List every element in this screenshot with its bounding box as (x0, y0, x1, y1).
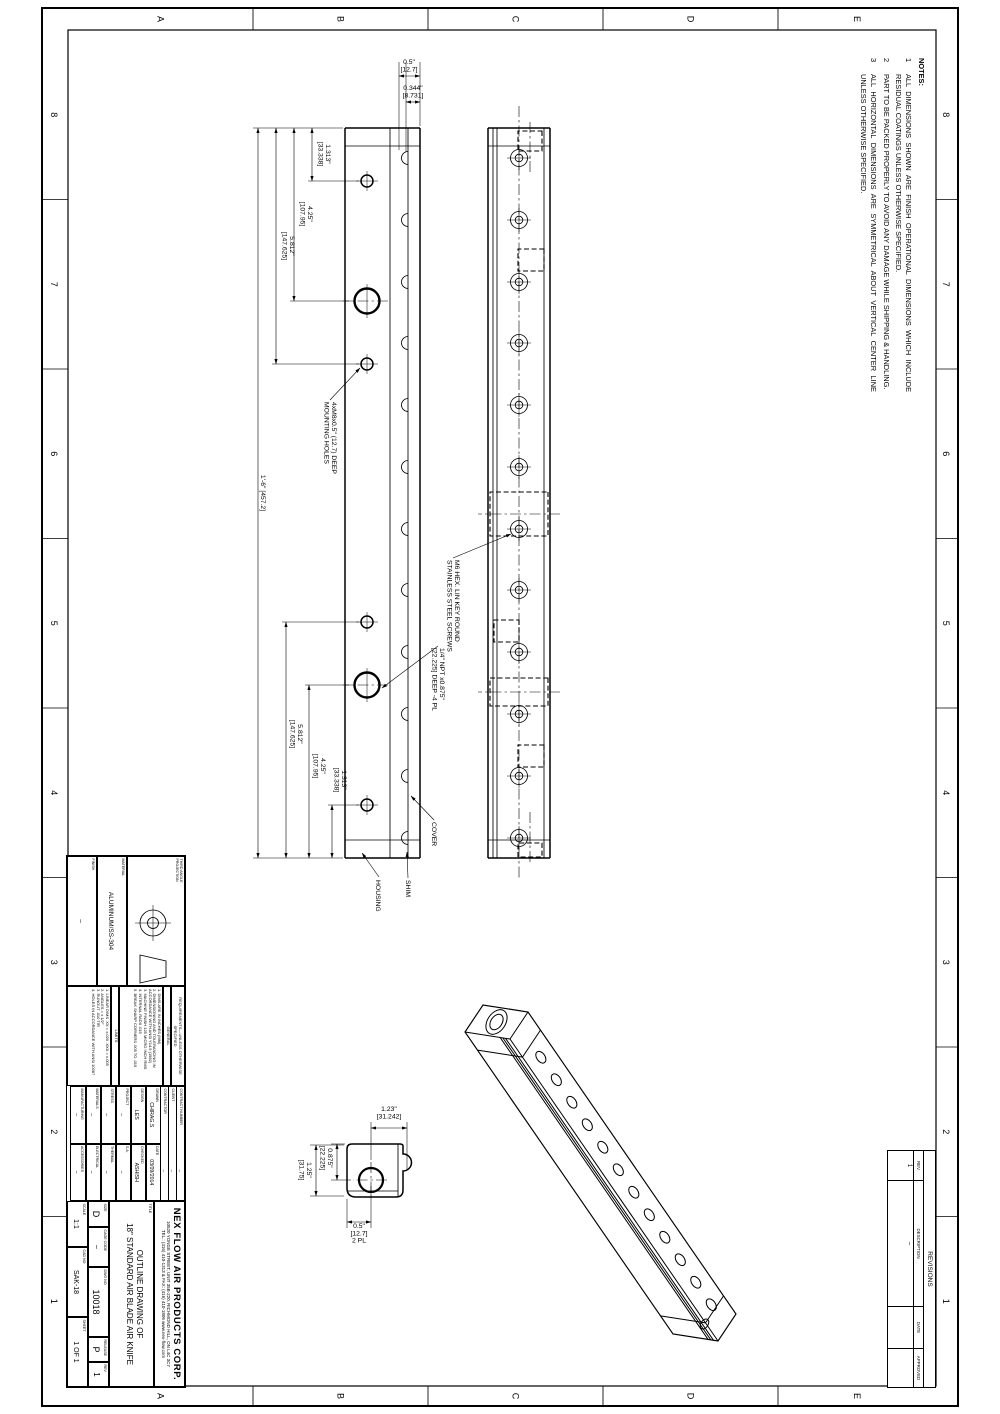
signoff-value: – (73, 1087, 79, 1143)
release-value: P (91, 1338, 101, 1361)
rev-cell: REV 1 (88, 1362, 109, 1387)
signoff-value: – (118, 1087, 124, 1143)
leader-text: HOUSING (374, 880, 381, 912)
zone-column-label: 2 (49, 1129, 59, 1134)
projection-cell: THIRD ANGLE PROJECTION (127, 856, 185, 986)
hidden-feature (518, 745, 544, 767)
dimension-text: [33.338] (333, 768, 340, 793)
signoff-label: CHECKED (140, 1146, 144, 1164)
scale-label: SCALE (82, 1204, 86, 1216)
drawing-title-line1: OUTLINE DRAWING OF (134, 1202, 144, 1386)
zone-column-label: 8 (941, 112, 951, 117)
requirements-header-cell: REQUIREMENTS—UNLESS OTHERWISE SPECIFIED (171, 986, 185, 1086)
dimension-text: 0.5" (353, 1223, 365, 1230)
spec-item: 2. DIMENSIONING AND TOLERANCING IN ACCOR… (147, 989, 156, 1083)
dimension-text: 1'-6" [457.2] (259, 475, 266, 511)
isometric-view (465, 1005, 736, 1341)
leader-text: 4xM8x0.5" (12.7) DEEP (330, 402, 337, 474)
zone-column-label: 3 (49, 960, 59, 965)
signoff-label: MANUFACTURING (80, 1089, 84, 1120)
cage-code-label: CAGE CODE (103, 1230, 107, 1252)
contractor-label: CONTRACTOR (163, 1089, 167, 1114)
client-value: – (169, 1169, 174, 1172)
inner-border (68, 30, 936, 1386)
signoff-row: MANUFACTURING–ACCESSORIES– (70, 1086, 85, 1201)
limits-title-cell: LIMITS (111, 986, 119, 1086)
signoff-cell: THERMAL– (101, 1144, 116, 1202)
cage-code-value: – (93, 1228, 100, 1266)
leader-text: M6 HEX. LIN KEY ROUND (453, 560, 460, 642)
revisions-header: REV (913, 1151, 923, 1181)
signoff-cell: DESIGNLES (131, 1086, 146, 1144)
revisions-table: REVISIONS REVDESCRIPTIONDATEAPPROVED 1– (887, 1150, 936, 1388)
signoff-row: PROJECT–S.A.– (116, 1086, 131, 1201)
company-cell: NEX FLOW AIR PRODUCTS CORP. 10520 YONGE … (154, 1201, 185, 1387)
note-number: 3 (858, 58, 878, 74)
screw-profile-bump (402, 646, 409, 659)
iso-slot-line (506, 1038, 714, 1340)
zone-row-label: C (511, 1393, 521, 1400)
signoff-cell: DATE03/09/2014 (146, 1144, 161, 1202)
dimension-text: 1.313" (324, 144, 331, 164)
iso-slot-line (500, 1037, 708, 1339)
signoff-cell: MANUFACTURING– (70, 1086, 85, 1144)
leader-text: MOUNTING HOLES (323, 402, 330, 464)
release-label: RELEASE (103, 1340, 107, 1357)
general-items-cell: 1. DIMS ARE IN INCHES (MM)2. DIMENSIONIN… (119, 986, 163, 1086)
zone-row-label: A (156, 16, 166, 22)
rev-label: REV (103, 1365, 107, 1372)
contractor-value: – (161, 1169, 166, 1172)
screw-profile-bump (402, 461, 409, 474)
zone-column-label: 2 (941, 1129, 951, 1134)
signoff-row: MATERIALS–ELECTRICAL– (86, 1086, 101, 1201)
size-cell: SIZE D (88, 1201, 109, 1227)
contract-row: CONTRACT NUMBER – (176, 1087, 184, 1200)
company-name: NEX FLOW AIR PRODUCTS CORP. (171, 1202, 182, 1386)
title-cell: TITLE OUTLINE DRAWING OF 18" STANDARD AI… (109, 1201, 154, 1387)
dimension-text: 0.5" (403, 59, 415, 66)
drawing-title-line2: 18" STANDARD AIR BLADE AIR KNIFE (124, 1202, 134, 1386)
client-row: CLIENT – (168, 1087, 176, 1200)
signoff-row: DRAWNCHIRAG.SDATE03/09/2014 (146, 1086, 161, 1201)
signoff-cell: S.A.– (116, 1144, 131, 1202)
signoff-cell: DRAWNCHIRAG.S (146, 1086, 161, 1144)
client-label: CLIENT (171, 1089, 175, 1102)
zone-row-label: B (336, 16, 346, 22)
zone-row-label: D (686, 1393, 696, 1400)
signoff-grid: DRAWNCHIRAG.SDATE03/09/2014DESIGNLESCHEC… (67, 1086, 161, 1201)
material-label: MATERIAL (121, 859, 125, 877)
signoff-cell: ACCESSORIES– (70, 1144, 85, 1202)
revisions-header: DESCRIPTION (913, 1181, 923, 1307)
zone-row-label: E (852, 16, 862, 22)
zone-column-label: 3 (941, 960, 951, 965)
leader-text: [22.225] DEEP -4 PL (431, 648, 438, 711)
dwg-no-label: DWG NO (103, 1270, 107, 1285)
spec-item: 4. HOLES IN ACCORDANCE WITH ANSI 10087 (90, 989, 95, 1083)
signoff-value: 03/09/2014 (149, 1145, 155, 1201)
leader-line (453, 534, 511, 558)
revisions-header: APPROVED (913, 1349, 923, 1387)
note-text: ALL HORIZONTAL DIMENSIONS ARE SYMMETRICA… (858, 74, 878, 392)
size-value: D (91, 1202, 101, 1226)
dimension-text: 5.812" (296, 724, 303, 744)
revisions-title: REVISIONS (923, 1151, 935, 1387)
iso-slot-line (503, 1038, 711, 1340)
note-text: PART TO BE PACKED PROPERLY TO AVOID ANY … (881, 74, 891, 392)
dwg-no-cell: DWG NO 10018 (88, 1267, 109, 1337)
dimension-text: [8.731] (403, 92, 424, 99)
scale-value: 1:1 (72, 1202, 79, 1246)
notes-block: NOTES: 1ALL DIMENSIONS SHOWN ARE FINISH … (855, 58, 926, 392)
signoff-cell: MATERIALS– (86, 1086, 101, 1144)
signoff-row: DESIGNLESCHECKEDASHISH (131, 1086, 146, 1201)
signoff-label: THERMAL (110, 1146, 114, 1163)
dimension-text: [107.95] (299, 202, 306, 227)
dimension-text: [22.225] (319, 1146, 326, 1171)
cad-no-cell: CAD NO SAK-18 (67, 1247, 88, 1317)
signoff-cell: CHECKEDASHISH (131, 1144, 146, 1202)
zone-row-label: C (511, 16, 521, 23)
signoff-label: DESIGN (140, 1089, 144, 1103)
dimension-text: [31.75] (298, 1160, 305, 1181)
drawing-sheet: 8877665544332211EEDDCCBBAA 1.313"[33.338… (0, 0, 1000, 1414)
screw-profile-bump (402, 584, 409, 597)
dimension-text: 5.812" (288, 236, 295, 256)
note-number: 2 (881, 58, 891, 74)
revisions-cell: – (888, 1181, 913, 1307)
sheet-cell: SHEET 1 OF 1 (67, 1317, 88, 1387)
zone-column-label: 4 (49, 790, 59, 795)
dimension-text: [12.7] (400, 66, 417, 73)
zone-column-label: 1 (49, 1299, 59, 1304)
signoff-label: PROJECT (125, 1089, 129, 1106)
leader-text: 1/4" NPT x0.875" (438, 648, 445, 701)
note-number: 1 (894, 58, 914, 74)
finish-value: – (77, 857, 84, 985)
hidden-feature (494, 620, 519, 642)
revisions-header: DATE (913, 1307, 923, 1349)
note-item: 2PART TO BE PACKED PROPERLY TO AVOID ANY… (881, 58, 891, 392)
signoff-label: DATE (155, 1146, 159, 1155)
scale-cell: SCALE 1:1 (67, 1201, 88, 1247)
dimension-text: 4.25" (306, 206, 313, 222)
dimension-text: [31.242] (377, 1113, 402, 1120)
leader-text: STAINLESS STEEL SCREWS (446, 560, 453, 652)
screw-profile-bump (402, 276, 409, 289)
zone-column-label: 5 (49, 621, 59, 626)
hidden-feature (518, 249, 544, 271)
signoff-value: – (73, 1145, 79, 1201)
signoff-value: – (103, 1145, 109, 1201)
dimension-text: [107.95] (312, 754, 319, 779)
screw-profile-bump (402, 523, 409, 536)
signoff-label: S.A. (125, 1146, 129, 1153)
signoff-value: CHIRAG.S (149, 1087, 155, 1143)
rev-value: 1 (92, 1363, 101, 1386)
signoff-label: MATERIALS (95, 1089, 99, 1109)
dimension-text: [147.625] (289, 720, 296, 748)
zone-column-label: 6 (49, 451, 59, 456)
leader-line (362, 853, 379, 877)
limits-title: LIMITS (113, 987, 118, 1085)
dimension-text: 1.23" (381, 1106, 397, 1113)
dimensions: 1.313"[33.338]4.25"[107.95]5.812"[147.62… (258, 59, 511, 1245)
screw-profile-bump (402, 337, 409, 350)
signoff-value: – (118, 1145, 124, 1201)
dimension-text: [12.7] (350, 1230, 367, 1237)
contract-value: – (177, 1169, 182, 1172)
zone-column-label: 5 (941, 621, 951, 626)
signoff-value: ASHISH (133, 1145, 139, 1201)
finish-label: FINISH (91, 859, 95, 871)
sheet-label: SHEET (82, 1320, 86, 1332)
signoff-value: – (88, 1145, 94, 1201)
title-label: TITLE (148, 1204, 152, 1214)
finish-cell: FINISH – (67, 856, 97, 986)
screw-profile-bump (402, 770, 409, 783)
leader-text: SHIM (404, 880, 411, 897)
zone-row-label: E (852, 1393, 862, 1399)
contract-label: CONTRACT NUMBER (179, 1089, 183, 1125)
zone-column-label: 6 (941, 451, 951, 456)
signoff-cell: PROJECT– (116, 1086, 131, 1144)
cad-no-label: CAD NO (82, 1250, 86, 1264)
zone-column-label: 4 (941, 790, 951, 795)
release-cell: RELEASE P (88, 1337, 109, 1362)
dimension-text: 1.313" (340, 770, 347, 790)
zone-column-label: 8 (49, 112, 59, 117)
revisions-cell (888, 1307, 913, 1349)
sheet-value: 1 OF 1 (72, 1318, 79, 1386)
screw-profile-bump (402, 832, 409, 845)
size-label: SIZE (103, 1204, 107, 1212)
material-value: ALUMINUM/SS-304 (107, 857, 114, 985)
zone-row-label: A (156, 1393, 166, 1399)
company-address: 10520 YONGE STREET, UNIT 35B-220, RICHMO… (166, 1202, 171, 1386)
leader-text: COVER (430, 822, 437, 846)
dimension-text: 0.344" (403, 85, 423, 92)
zone-column-label: 7 (941, 282, 951, 287)
signoff-label: ELECTRICAL (95, 1146, 99, 1168)
dimension-text: 2 PL (352, 1238, 366, 1245)
signoff-row: STRESS–THERMAL– (101, 1086, 116, 1201)
revisions-cell: 1 (888, 1151, 913, 1181)
signoff-value: – (103, 1087, 109, 1143)
signoff-value: LES (133, 1087, 139, 1143)
limits-items-cell: 1. LINEAR DIMS .XX = ±.020 .XXX = ±.0052… (67, 986, 111, 1086)
requirements-header: REQUIREMENTS—UNLESS OTHERWISE SPECIFIED (173, 987, 182, 1085)
iso-edge (510, 1039, 718, 1341)
screw-profile-bump (402, 399, 409, 412)
zone-row-label: B (336, 1393, 346, 1399)
note-item: 1ALL DIMENSIONS SHOWN ARE FINISH OPERATI… (894, 58, 914, 392)
notes-title: NOTES: (916, 58, 926, 392)
revisions-cell (888, 1349, 913, 1387)
spec-item: 5. BREAK SHARP CORNERS .005 TO .015 (133, 989, 138, 1083)
dimension-text: 0.875" (326, 1148, 333, 1168)
iso-body (465, 1005, 736, 1341)
note-item: 3ALL HORIZONTAL DIMENSIONS ARE SYMMETRIC… (858, 58, 878, 392)
screw-profile-bump (402, 708, 409, 721)
signoff-value: – (88, 1087, 94, 1143)
screw-profile-bump (402, 152, 409, 165)
note-text: ALL DIMENSIONS SHOWN ARE FINISH OPERATIO… (894, 74, 914, 392)
signoff-label: STRESS (110, 1089, 114, 1103)
title-block: THIRD ANGLE PROJECTION MATERIAL ALUMINUM… (66, 855, 186, 1388)
cage-code-cell: CAGE CODE – (88, 1227, 109, 1267)
zone-column-label: 1 (941, 1299, 951, 1304)
leader-line (411, 796, 434, 820)
zone-row-label: D (686, 16, 696, 23)
dimension-text: [33.338] (317, 142, 324, 167)
signoff-label: ACCESSORIES (80, 1146, 84, 1172)
dimension-text: [147.625] (281, 232, 288, 260)
zone-column-label: 7 (49, 282, 59, 287)
signoff-cell: ELECTRICAL– (86, 1144, 101, 1202)
dimension-text: 1.25" (305, 1162, 312, 1178)
screw-profile-bump (402, 214, 409, 227)
dwg-no-value: 10018 (91, 1268, 101, 1336)
contract-cells: CONTRACT NUMBER – CLIENT – CONTRACTOR – (161, 1086, 185, 1201)
dimension-text: 4.25" (319, 758, 326, 774)
cad-no-value: SAK-18 (72, 1248, 79, 1316)
contractor-row: CONTRACTOR – (161, 1087, 168, 1200)
signoff-cell: STRESS– (101, 1086, 116, 1144)
general-title-cell: GENERAL (163, 986, 171, 1086)
third-angle-projection-icon (127, 857, 184, 986)
material-cell: MATERIAL ALUMINUM/SS-304 (97, 856, 127, 986)
signoff-label: DRAWN (155, 1089, 159, 1102)
general-title: GENERAL (165, 987, 170, 1085)
